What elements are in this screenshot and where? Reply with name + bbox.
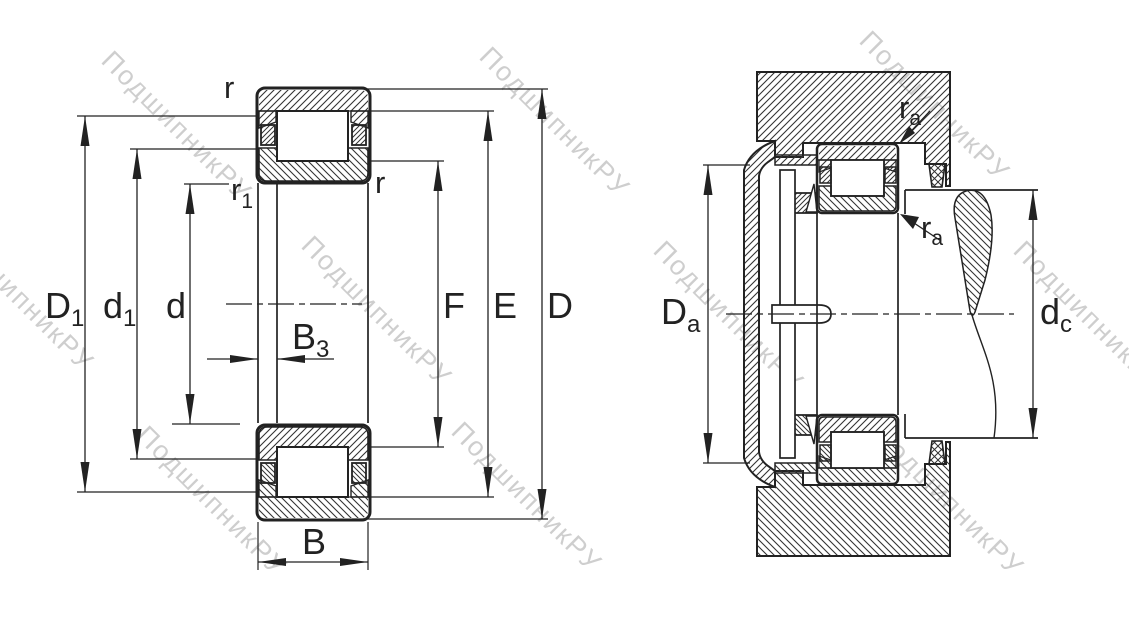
dimension-F-label: F [443,285,465,326]
watermark-text: ПодшипникРУ [296,230,458,392]
dimension-dc: dc [1029,190,1073,438]
chamfer-r-top-label: r [224,70,234,105]
dimension-D-label: D [547,285,573,326]
dimension-B3-label: B3 [292,316,329,363]
shaft-break-line [972,315,996,438]
bearing-drawing: ПодшипникРУ ПодшипникРУ ПодшипникРУ Подш… [0,0,1129,632]
dimension-B-label: B [302,521,326,562]
snap-ring-section [929,164,945,187]
left-view-bearing-cross-section: D1 d1 d F [45,70,573,570]
snap-ring-section [929,441,945,464]
drawing-canvas: ПодшипникРУ ПодшипникРУ ПодшипникРУ Подш… [0,0,1129,632]
cage-section [352,463,366,483]
shaft-broken-section [954,190,992,315]
mounted-bearing-section [817,415,898,484]
bearing-section-bottom [257,425,370,520]
roller [277,111,348,161]
cage-section [352,125,366,145]
cap-lip [775,463,817,473]
roller [277,447,348,497]
dimension-d1-label: d1 [103,285,136,332]
watermark-text: ПодшипникРУ [474,41,636,203]
cage-section [261,463,275,483]
dimension-E-label: E [493,285,517,326]
callout-ra-bottom-label: ra [921,210,943,250]
mounted-bearing-section [817,144,898,213]
cap-lip [775,155,817,165]
cage-section [261,125,275,145]
bearing-section-top [257,88,370,183]
dimension-d-label: d [166,285,186,326]
dimension-D1-label: D1 [45,285,84,332]
callout-ra-bottom: ra [900,210,943,250]
chamfer-r-inner-label: r [375,165,385,200]
dimension-B3: B3 [207,316,334,363]
